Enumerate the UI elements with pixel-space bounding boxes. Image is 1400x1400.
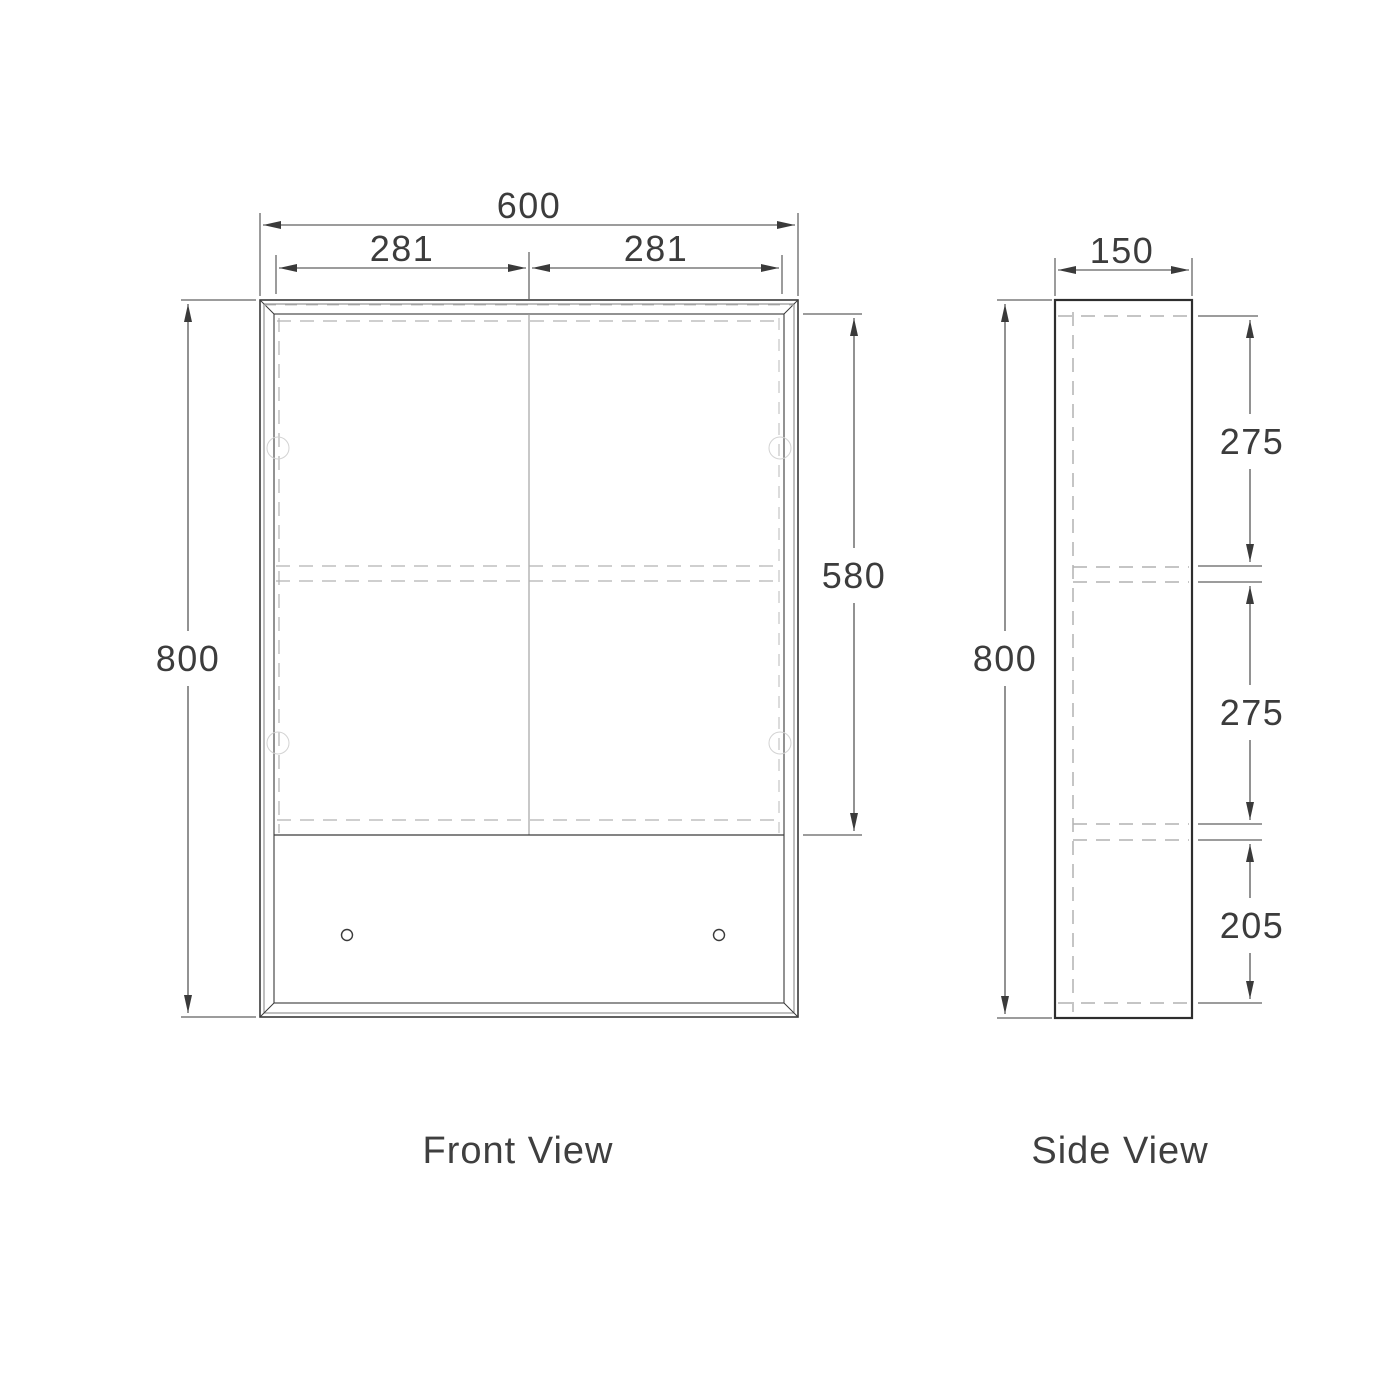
dim-text-281-right: 281 (624, 228, 689, 269)
dim-text-800-side: 800 (973, 638, 1038, 679)
dim-front-overall-height: 800 (156, 300, 256, 1017)
dim-side-bottom-section: 205 (1198, 840, 1284, 1003)
dim-side-depth: 150 (1055, 230, 1192, 296)
side-view: 150 800 275 275 205 (973, 230, 1285, 1172)
dim-side-top-section: 275 (1198, 316, 1284, 566)
hinge-mark-bottom-left (267, 732, 289, 754)
dim-front-door-widths: 281 281 (276, 228, 782, 299)
dim-side-overall-height: 800 (973, 300, 1052, 1018)
screw-hole-right (714, 930, 725, 941)
technical-drawing-page: 600 281 281 800 580 Front View (0, 0, 1400, 1400)
dim-text-580: 580 (822, 555, 887, 596)
dim-side-middle-section: 275 (1198, 582, 1284, 824)
screw-hole-left (342, 930, 353, 941)
front-view-label: Front View (423, 1130, 614, 1172)
dim-text-275-top: 275 (1220, 421, 1285, 462)
dim-text-205: 205 (1220, 905, 1285, 946)
dim-text-281-left: 281 (370, 228, 435, 269)
side-view-label: Side View (1031, 1130, 1208, 1172)
front-view: 600 281 281 800 580 Front View (156, 185, 887, 1172)
cabinet-dimension-drawing: 600 281 281 800 580 Front View (0, 0, 1400, 1400)
dim-text-275-middle: 275 (1220, 692, 1285, 733)
hinge-mark-bottom-right (769, 732, 791, 754)
dim-text-150: 150 (1090, 230, 1155, 271)
dim-front-door-height: 580 (803, 314, 886, 835)
side-outline (1055, 300, 1192, 1018)
hinge-mark-top-right (769, 437, 791, 459)
dim-text-800-front: 800 (156, 638, 221, 679)
hinge-mark-top-left (267, 437, 289, 459)
dim-text-600: 600 (497, 185, 562, 226)
